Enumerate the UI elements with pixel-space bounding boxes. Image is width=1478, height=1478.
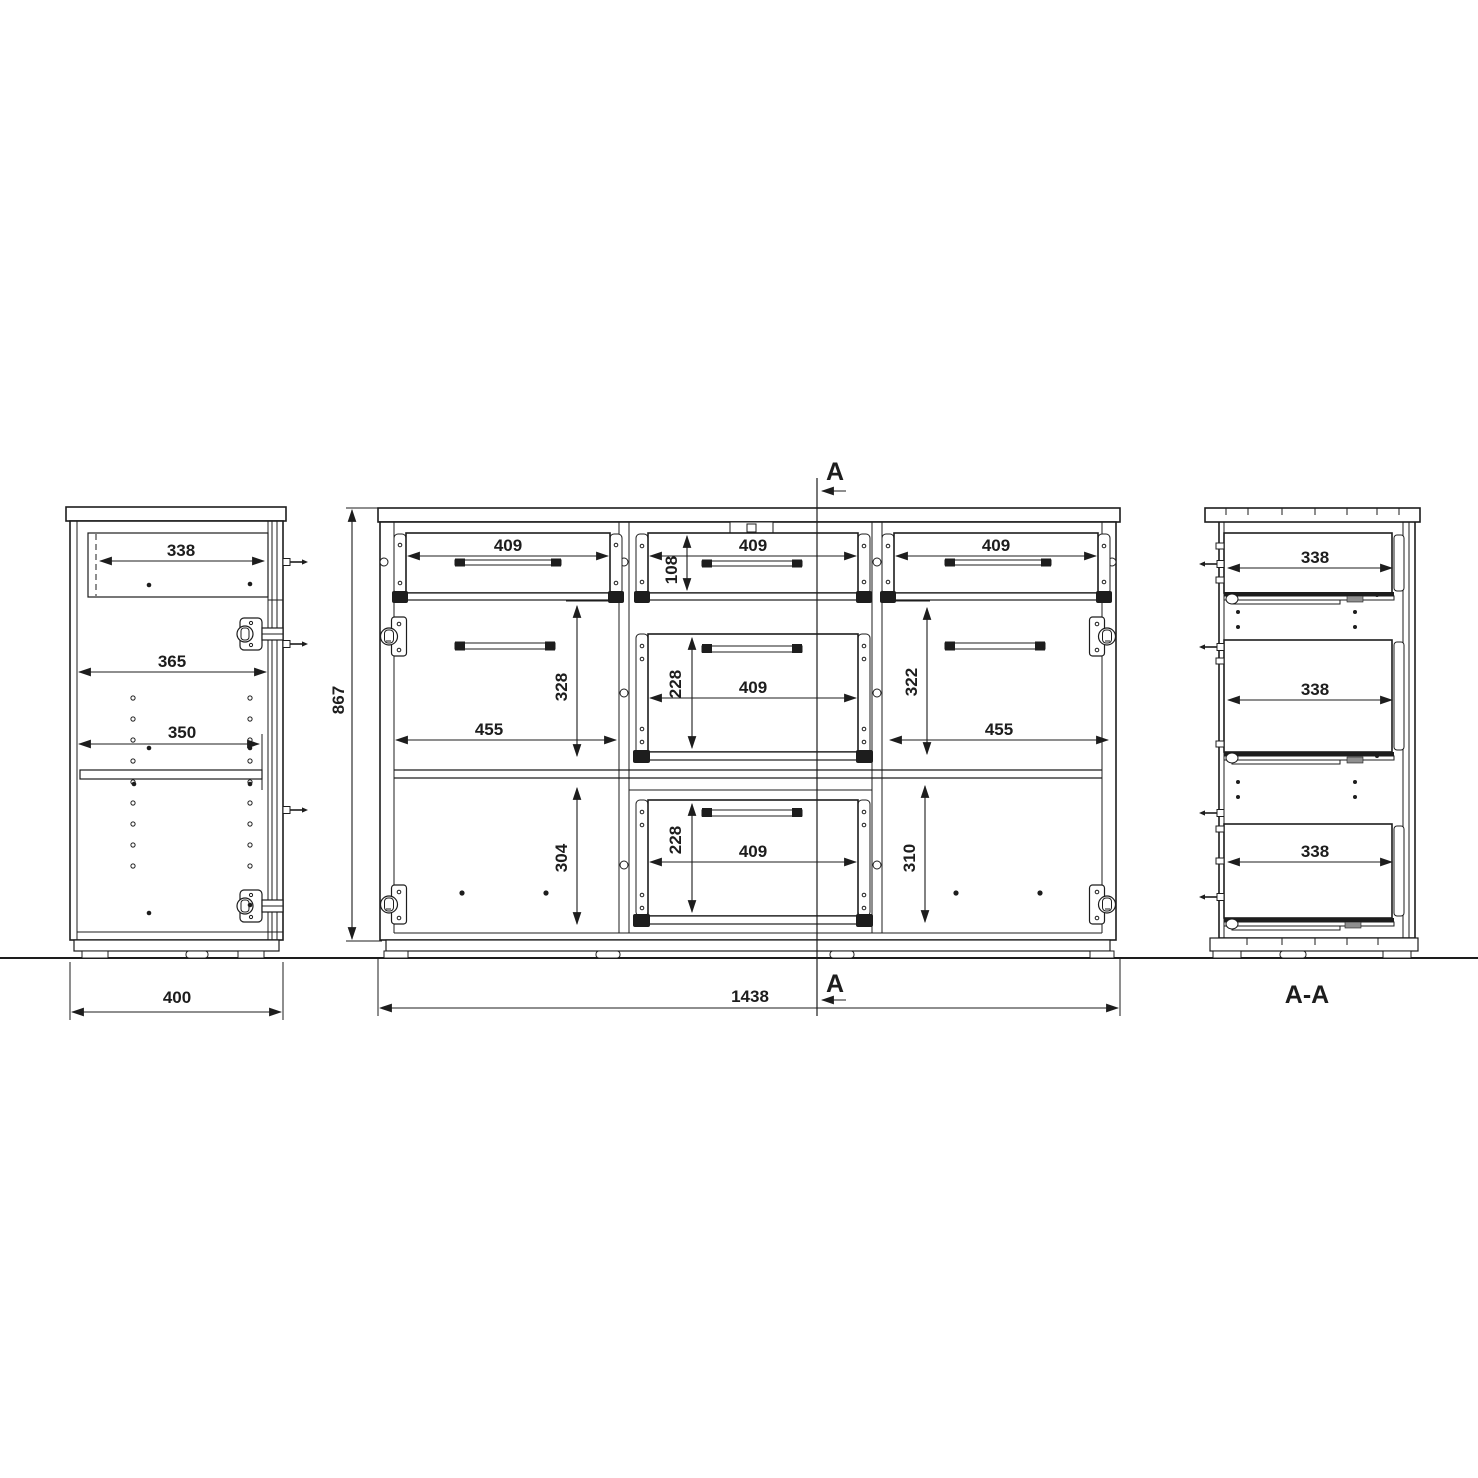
foot xyxy=(596,951,620,958)
foot xyxy=(1090,951,1114,958)
drawer-top-mid: 409 108 xyxy=(634,533,872,603)
dim-side-depth: 400 xyxy=(163,988,191,1007)
slide-bracket xyxy=(856,914,873,927)
drawer-top-left: 409 xyxy=(392,533,624,603)
dim-side-interior-width: 365 xyxy=(158,652,186,671)
drawing-canvas: 338 365 350 400 xyxy=(0,0,1478,1478)
dim-top-mid-width: 409 xyxy=(739,536,767,555)
top-panel xyxy=(66,507,286,521)
dim-side-shelf-width: 350 xyxy=(168,723,196,742)
handle xyxy=(945,643,1045,649)
side-view: 338 365 350 400 xyxy=(66,507,308,1020)
foot xyxy=(1280,951,1306,958)
dim-top-height: 108 xyxy=(662,556,681,584)
dim-mid-width: 409 xyxy=(739,678,767,697)
dim-right-upper-height: 322 xyxy=(902,668,921,696)
dim-section-bottom-depth: 338 xyxy=(1301,842,1329,861)
drawer-mid: 228 409 xyxy=(633,634,873,763)
drawer-bottom: 228 409 xyxy=(633,800,873,927)
plinth xyxy=(74,940,279,951)
dim-top-left-width: 409 xyxy=(494,536,522,555)
dim-section-mid-depth: 338 xyxy=(1301,680,1329,699)
dim-left-upper-height: 328 xyxy=(552,673,571,701)
drawer-top-right: 409 xyxy=(880,533,1112,603)
foot xyxy=(1383,951,1411,958)
technical-drawing: 338 365 350 400 xyxy=(0,0,1478,1478)
drawer-slide xyxy=(1224,918,1394,922)
slide-bracket xyxy=(634,591,650,603)
front-view: 409 409 108 xyxy=(329,508,1120,1016)
foot xyxy=(1213,951,1241,958)
handle xyxy=(702,561,802,566)
foot xyxy=(238,951,264,958)
foot xyxy=(82,951,108,958)
dim-overall-width: 1438 xyxy=(731,987,769,1006)
slide-bracket xyxy=(633,914,650,927)
dim-mid-height: 228 xyxy=(666,670,685,698)
handle xyxy=(945,560,1051,565)
dim-bottom-height: 228 xyxy=(666,826,685,854)
slide-bracket xyxy=(856,750,873,763)
dim-top-right-width: 409 xyxy=(982,536,1010,555)
top-panel xyxy=(1205,508,1420,522)
slide-bracket xyxy=(633,750,650,763)
shelf xyxy=(80,770,262,779)
slide-bracket xyxy=(392,591,408,603)
foot xyxy=(384,951,408,958)
foot xyxy=(830,951,854,958)
section-view-title: A-A xyxy=(1285,981,1329,1009)
dim-section-top-depth: 338 xyxy=(1301,548,1329,567)
section-marker-bottom: A xyxy=(826,970,844,998)
slide-bracket xyxy=(856,591,872,603)
slide-bracket xyxy=(608,591,624,603)
plinth xyxy=(1210,938,1418,951)
drawer-slide xyxy=(1224,752,1394,756)
handle xyxy=(455,643,555,649)
top-panel xyxy=(378,508,1120,522)
dim-bottom-width: 409 xyxy=(739,842,767,861)
section-drawer-top: 338 xyxy=(1224,533,1404,604)
section-drawer-bottom: 338 xyxy=(1224,824,1404,930)
drawer-slide xyxy=(1224,592,1394,596)
section-marker-top: A xyxy=(826,458,844,486)
dim-overall-height: 867 xyxy=(329,686,348,714)
handle xyxy=(702,646,802,652)
section-view: 338 338 xyxy=(1199,508,1420,1009)
dim-left-width: 455 xyxy=(475,720,503,739)
dim-side-drawer-width: 338 xyxy=(167,541,195,560)
plinth xyxy=(386,940,1110,951)
slide-bracket xyxy=(1096,591,1112,603)
dim-right-lower-height: 310 xyxy=(900,844,919,872)
section-drawer-mid: 338 xyxy=(1224,640,1404,764)
dim-left-lower-height: 304 xyxy=(552,843,571,872)
handle xyxy=(702,810,802,816)
foot xyxy=(186,951,208,958)
handle xyxy=(455,560,561,565)
dim-right-width: 455 xyxy=(985,720,1013,739)
